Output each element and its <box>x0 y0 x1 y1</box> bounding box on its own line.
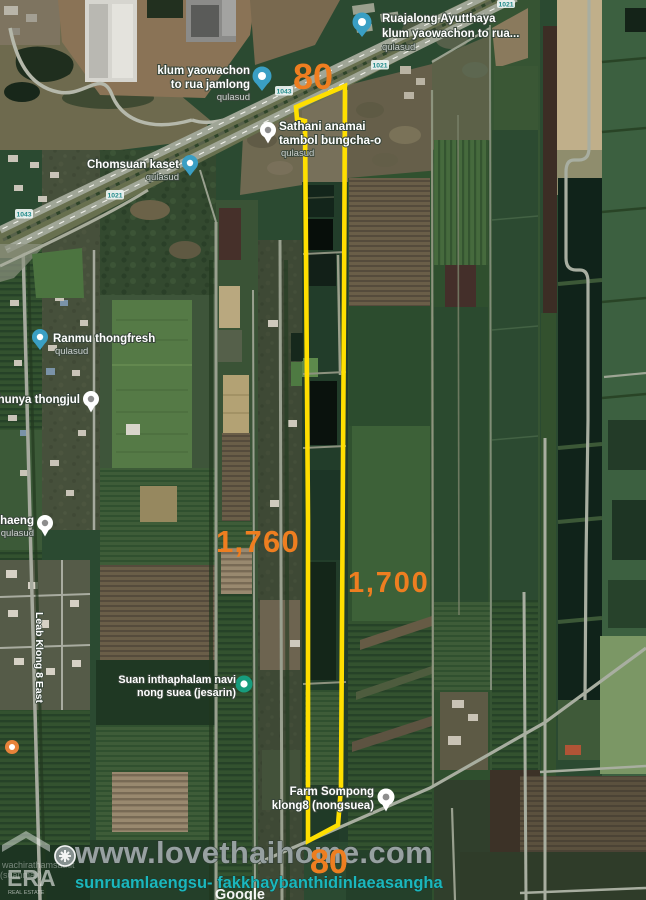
svg-text:qulasud: qulasud <box>1 528 34 539</box>
svg-text:qulasud: qulasud <box>146 172 179 183</box>
svg-text:qulasud: qulasud <box>55 346 88 357</box>
svg-text:nong suea (jesarin): nong suea (jesarin) <box>137 687 236 699</box>
svg-text:qulasud: qulasud <box>382 42 415 53</box>
svg-text:qulasud: qulasud <box>217 92 250 103</box>
svg-text:80: 80 <box>293 56 333 97</box>
svg-text:Suan inthaphalam navi: Suan inthaphalam navi <box>118 674 236 686</box>
svg-text:1043: 1043 <box>276 89 291 96</box>
svg-text:1021: 1021 <box>498 2 513 9</box>
svg-text:1,760: 1,760 <box>216 524 300 559</box>
svg-text:REAL ESTATE: REAL ESTATE <box>8 890 45 896</box>
svg-text:Ban khunya thongjul: Ban khunya thongjul <box>0 394 80 406</box>
svg-text:Sathani anamai: Sathani anamai <box>279 119 366 133</box>
svg-text:Farm Sompong: Farm Sompong <box>290 786 374 798</box>
svg-text:qulasud: qulasud <box>281 148 314 159</box>
svg-text:Ruajalong Ayutthaya: Ruajalong Ayutthaya <box>382 13 496 25</box>
svg-text:klum yaowachon to rua...: klum yaowachon to rua... <box>382 28 519 40</box>
svg-text:klum yaowachon: klum yaowachon <box>157 65 250 77</box>
svg-text:namkhaeng: namkhaeng <box>0 515 34 527</box>
svg-text:klong8 (nongsuea): klong8 (nongsuea) <box>272 800 374 812</box>
svg-text:www.lovethaihome.com: www.lovethaihome.com <box>74 835 433 870</box>
svg-text:ERA: ERA <box>7 865 56 891</box>
svg-text:Chomsuan kaset: Chomsuan kaset <box>87 159 179 171</box>
svg-text:Google: Google <box>215 887 265 900</box>
svg-text:1043: 1043 <box>16 212 31 219</box>
svg-text:1021: 1021 <box>372 63 387 70</box>
svg-text:1021: 1021 <box>107 193 122 200</box>
svg-text:80: 80 <box>310 843 348 881</box>
svg-text:to rua jamlong: to rua jamlong <box>171 79 250 91</box>
svg-text:Leab Klong 8 East: Leab Klong 8 East <box>33 612 45 704</box>
svg-text:tambol bungcha-o: tambol bungcha-o <box>279 133 381 147</box>
svg-text:Ranmu thongfresh: Ranmu thongfresh <box>53 333 155 345</box>
svg-text:1,700: 1,700 <box>348 567 430 599</box>
